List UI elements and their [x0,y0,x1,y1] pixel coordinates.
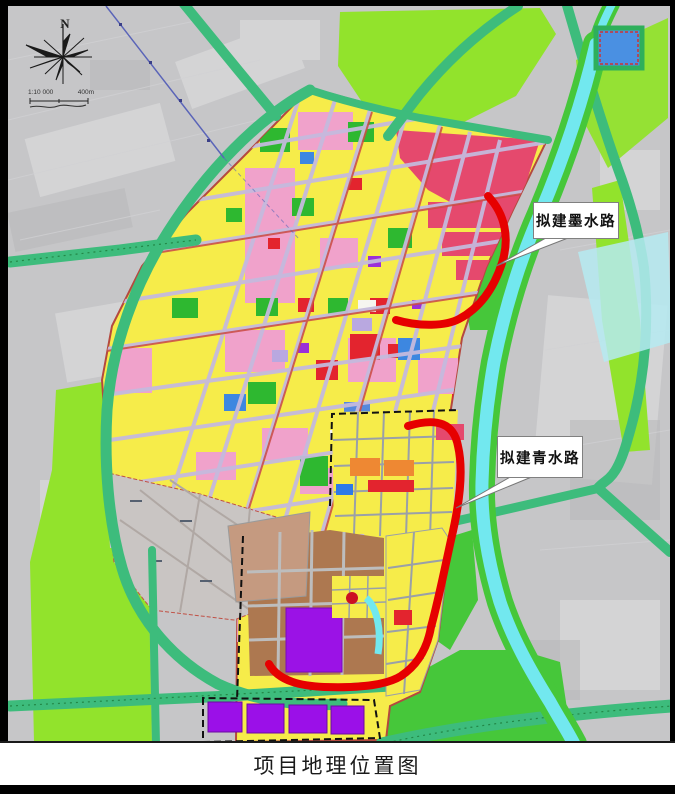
frame-border-right [670,0,675,741]
callout-qingshui-road: 拟建青水路 [497,436,583,478]
park-reservoir [596,28,642,68]
figure-frame: N 1:10 000 400m 拟建墨水路 拟建青水路 项目地理位置图 [0,0,675,794]
frame-border-bottom [0,785,675,794]
scale-distance-label: 400m [78,89,94,96]
frame-border-top [0,0,675,6]
callout-qingshui-label: 拟建青水路 [500,447,580,468]
scale-ratio-label: 1:10 000 [28,89,53,96]
map-canvas: N 1:10 000 400m 拟建墨水路 拟建青水路 [8,6,670,741]
figure-caption: 项目地理位置图 [0,741,675,787]
compass-north-label: N [56,16,74,32]
scale-bar-labels: 1:10 000 400m [28,89,94,96]
planning-map [8,6,670,741]
frame-border-left [0,0,8,741]
callout-moshui-label: 拟建墨水路 [536,210,616,231]
callout-moshui-road: 拟建墨水路 [533,202,619,239]
